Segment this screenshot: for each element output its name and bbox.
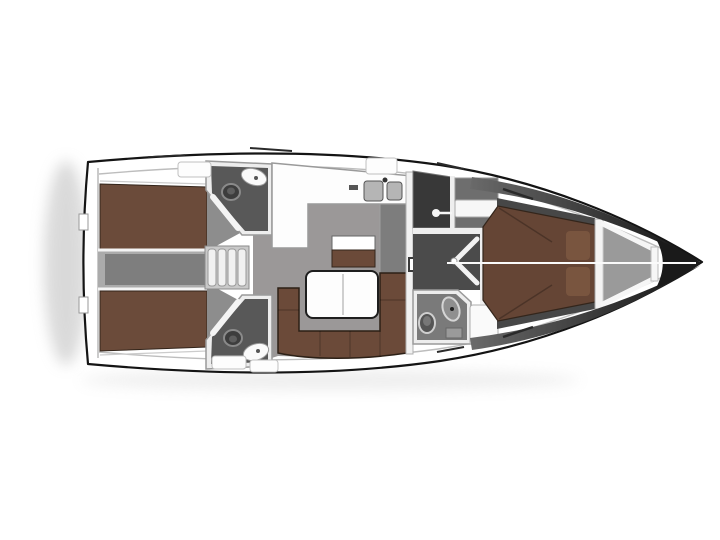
sink-drain (450, 307, 454, 311)
galley-sink-basin (364, 181, 383, 201)
berth-port (100, 184, 207, 251)
toilet-lid (423, 316, 431, 326)
galley-sink-basin (387, 182, 402, 200)
pillow (566, 267, 590, 296)
step-tread (208, 249, 216, 286)
shower-grate (446, 328, 462, 338)
sideboard (380, 204, 407, 273)
deck-box (250, 360, 278, 372)
stool-base (332, 250, 375, 267)
deck-box (366, 158, 397, 174)
step-tread (228, 249, 236, 286)
salon-table (306, 271, 378, 318)
deck-box (212, 356, 246, 369)
stool-top (332, 236, 375, 250)
counter-fitting (349, 185, 358, 190)
engine-hatch (105, 254, 208, 285)
shower-room (413, 171, 452, 228)
passage-wall (413, 228, 483, 234)
sink-drain (256, 349, 260, 353)
engine-corridor (98, 250, 212, 289)
faucet-icon (383, 178, 388, 183)
companionway-steps (205, 246, 249, 289)
hull-bottom-shadow (80, 370, 580, 390)
sink-drain (254, 176, 258, 180)
stern-shadow (44, 161, 88, 365)
step-tread (238, 249, 246, 286)
step-tread (218, 249, 226, 286)
pillow (566, 231, 590, 260)
yacht-floor-plan (0, 0, 720, 540)
toilet-lid (227, 188, 235, 195)
stool-seat (332, 236, 375, 267)
transom-notch-bottom (79, 297, 88, 313)
forward-passage (413, 228, 483, 290)
toilet-lid (229, 336, 237, 343)
berth-starboard (100, 291, 207, 351)
floor-plan-svg (0, 0, 720, 540)
deck-box (178, 162, 211, 177)
shower-room-port (413, 171, 455, 228)
partition-wall (450, 176, 455, 228)
transom-notch-top (79, 214, 88, 230)
